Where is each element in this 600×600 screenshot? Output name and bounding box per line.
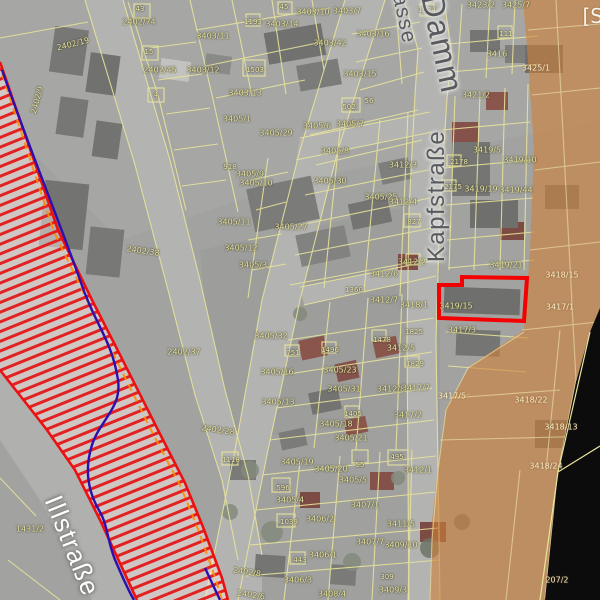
map-canvas[interactable] [0, 0, 600, 600]
corner-clipped-label: [S [583, 4, 600, 28]
map-viewport[interactable]: 2402/192402/742402/92402/453403/123403/1… [0, 0, 600, 600]
